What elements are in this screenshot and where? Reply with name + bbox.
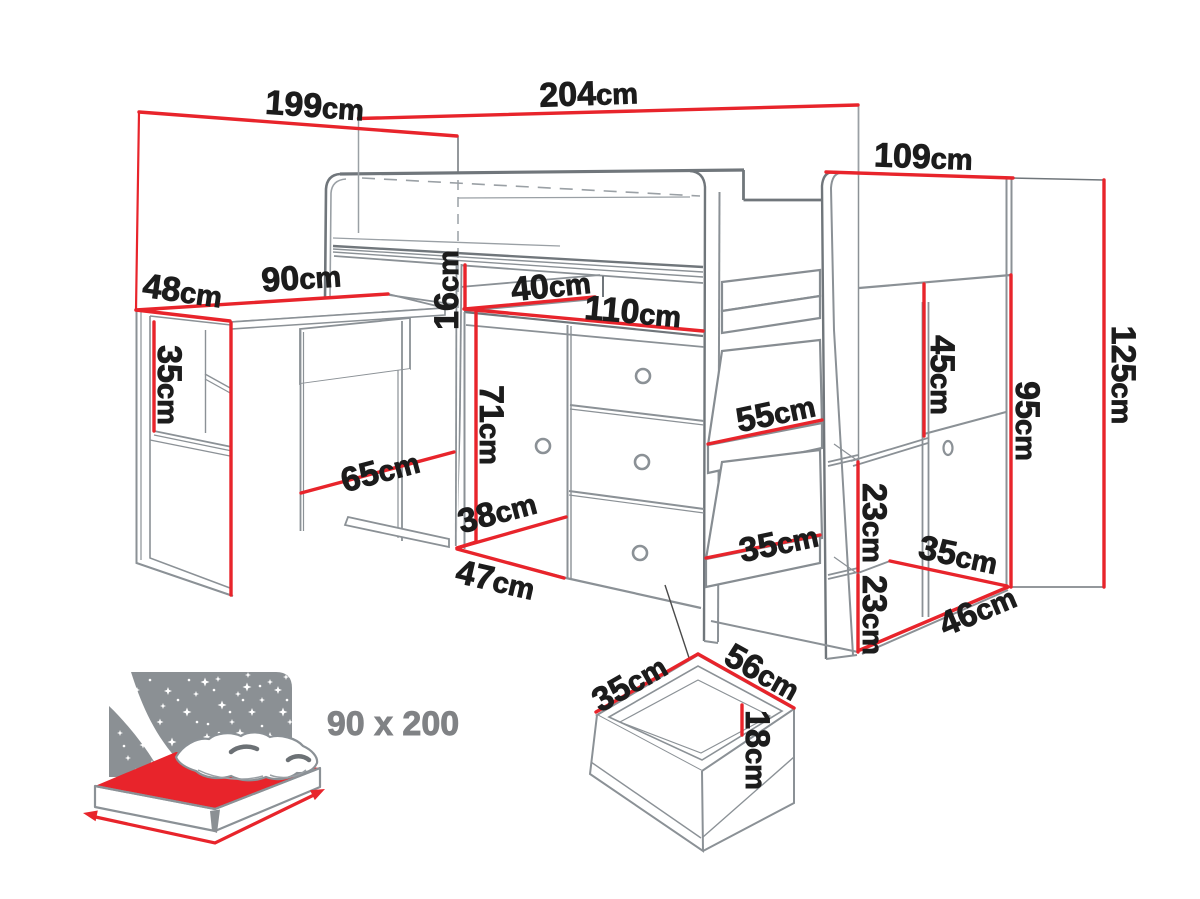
svg-text:18cm: 18cm [738, 710, 776, 790]
svg-text:90 x 200: 90 x 200 [327, 705, 459, 743]
svg-text:71cm: 71cm [472, 385, 510, 465]
svg-text:23cm: 23cm [855, 483, 893, 563]
svg-text:204cm: 204cm [539, 73, 639, 114]
svg-text:95cm: 95cm [1008, 381, 1046, 461]
svg-text:45cm: 45cm [923, 335, 961, 415]
svg-text:23cm: 23cm [855, 575, 893, 655]
svg-text:16cm: 16cm [428, 250, 466, 330]
svg-text:125cm: 125cm [1104, 326, 1142, 425]
svg-text:35cm: 35cm [150, 345, 188, 425]
